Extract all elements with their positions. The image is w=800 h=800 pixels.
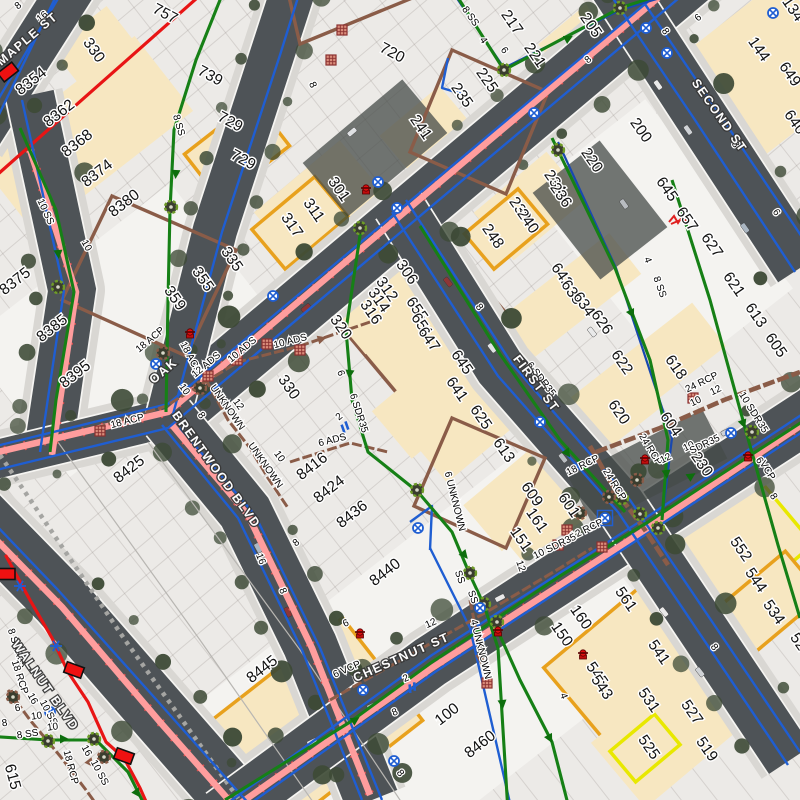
tree: [218, 306, 241, 329]
circle: [495, 620, 499, 624]
rect: [337, 25, 347, 35]
storm-inlet-icon: [337, 25, 347, 35]
water-valve-icon: [373, 177, 383, 187]
storm-manhole-icon: [631, 474, 643, 486]
storm-inlet-icon: [597, 542, 607, 552]
pipe-label: 10: [46, 721, 59, 734]
tree: [223, 434, 242, 453]
circle: [618, 6, 622, 10]
tree: [628, 60, 649, 81]
circle: [198, 386, 202, 390]
tree: [184, 201, 198, 215]
tree: [193, 690, 207, 704]
tree: [753, 271, 767, 285]
tree: [307, 566, 323, 582]
circle: [635, 478, 639, 482]
water-valve-icon: [662, 48, 672, 58]
water-valve-icon: [726, 428, 736, 438]
tree: [223, 291, 233, 301]
circle: [468, 571, 472, 575]
gis-map-viewport[interactable]: GIS parcel and utility map - downtown gr…: [0, 0, 800, 800]
pipe-label: 10: [30, 710, 43, 723]
storm-inlet-icon: [262, 339, 272, 349]
circle: [556, 148, 560, 152]
water-valve-icon: [389, 756, 399, 766]
storm-manhole-icon: [7, 691, 19, 703]
circle: [638, 512, 642, 516]
circle: [169, 205, 173, 209]
tree: [57, 59, 68, 70]
sewer-manhole-icon: [552, 144, 564, 156]
tree: [10, 418, 26, 434]
tree: [390, 632, 403, 645]
tree: [329, 767, 344, 782]
tree: [249, 381, 266, 398]
water-valve-icon: [392, 203, 402, 213]
tree: [627, 569, 640, 582]
rect: [597, 542, 607, 552]
tree: [775, 166, 787, 178]
storm-inlet-icon: [295, 345, 305, 355]
tree: [214, 531, 227, 544]
circle: [102, 755, 106, 759]
tree: [199, 151, 213, 165]
sewer-manhole-icon: [634, 508, 646, 520]
tree: [254, 621, 268, 635]
tree: [170, 250, 187, 267]
sewer-manhole-icon: [52, 281, 64, 293]
tree: [689, 34, 698, 43]
tree: [713, 73, 734, 94]
sewer-manhole-icon: [88, 733, 100, 745]
tree: [451, 227, 471, 247]
tree: [378, 244, 398, 264]
tree: [527, 456, 536, 465]
tree: [101, 452, 116, 467]
rect: [326, 55, 336, 65]
water-valve-icon: [641, 23, 651, 33]
circle: [161, 351, 165, 355]
storm-manhole-icon: [194, 382, 206, 394]
water-valve-icon: [268, 291, 278, 301]
circle: [46, 739, 50, 743]
storm-manhole-icon: [157, 347, 169, 359]
tree: [223, 728, 242, 747]
tree: [111, 721, 133, 743]
tree: [556, 128, 567, 139]
tree: [558, 383, 580, 405]
tree: [92, 577, 105, 590]
tree: [334, 211, 349, 226]
tree: [778, 682, 789, 693]
sewer-manhole-icon: [652, 522, 664, 534]
tree: [452, 120, 463, 131]
sewer-manhole-icon: [491, 616, 503, 628]
tree: [734, 738, 749, 753]
rect: [0, 569, 15, 580]
tree: [283, 97, 292, 106]
tree: [296, 42, 313, 59]
tree: [715, 593, 737, 615]
tree: [155, 654, 171, 670]
water-valve-icon: [358, 685, 368, 695]
tree: [650, 612, 664, 626]
tree: [29, 292, 43, 306]
tree: [53, 469, 62, 478]
tree: [250, 195, 264, 209]
water-valve-icon: [529, 108, 539, 118]
water-valve-icon: [413, 523, 423, 533]
tree: [65, 410, 76, 421]
circle: [56, 285, 60, 289]
tree: [265, 144, 281, 160]
tree: [673, 656, 690, 673]
sewer-manhole-icon: [354, 222, 366, 234]
water-valve-icon: [535, 417, 545, 427]
tree: [129, 615, 139, 625]
storm-inlet-icon: [326, 55, 336, 65]
tree: [12, 399, 27, 414]
tree: [19, 344, 36, 361]
tree: [594, 96, 611, 113]
circle: [11, 695, 15, 699]
circle: [358, 226, 362, 230]
electric-box-icon: [0, 569, 15, 580]
tree: [227, 758, 237, 768]
tree: [706, 695, 722, 711]
circle: [502, 68, 506, 72]
sewer-manhole-icon: [411, 484, 423, 496]
tree: [287, 525, 297, 535]
tree: [137, 393, 148, 404]
tree: [501, 308, 522, 329]
tree: [27, 98, 42, 113]
tree: [708, 0, 719, 11]
tree: [367, 733, 389, 755]
circle: [415, 488, 419, 492]
tree: [111, 389, 134, 412]
tree: [249, 0, 260, 11]
tree: [329, 611, 344, 626]
sewer-manhole-icon: [165, 201, 177, 213]
tree: [17, 608, 33, 624]
sewer-manhole-icon: [614, 2, 626, 14]
circle: [92, 737, 96, 741]
tree: [78, 14, 95, 31]
rect: [95, 426, 105, 436]
tree: [295, 243, 312, 260]
tree: [235, 53, 247, 65]
rect: [262, 339, 272, 349]
circle: [607, 495, 611, 499]
sewer-manhole-icon: [498, 64, 510, 76]
tree: [217, 339, 226, 348]
storm-inlet-icon: [95, 426, 105, 436]
rect: [295, 345, 305, 355]
sewer-manhole-icon: [42, 735, 54, 747]
tree: [665, 534, 685, 554]
map-canvas[interactable]: 1688 SS10 SS1018 ACP18 ACP18 ACP12 ADS10…: [0, 0, 800, 800]
circle: [750, 430, 754, 434]
water-valve-icon: [768, 8, 778, 18]
circle: [656, 526, 660, 530]
water-valve-icon: [475, 603, 485, 613]
